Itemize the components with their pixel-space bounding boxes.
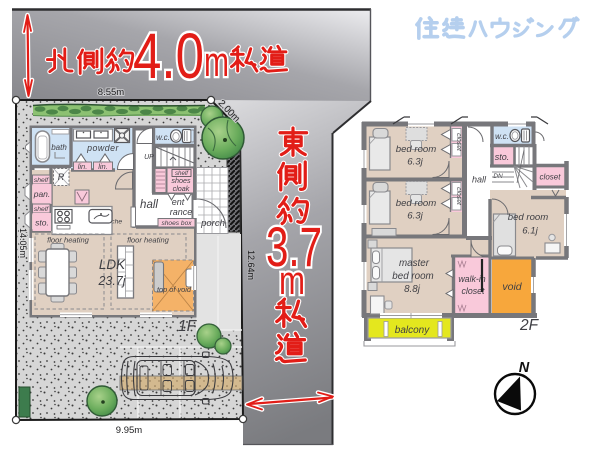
svg-text:R: R bbox=[58, 172, 65, 182]
svg-text:lin.: lin. bbox=[98, 162, 108, 171]
svg-text:balcony: balcony bbox=[395, 325, 430, 336]
svg-text:UP: UP bbox=[144, 154, 154, 161]
svg-text:14.05m: 14.05m bbox=[18, 228, 28, 258]
svg-text:m: m bbox=[279, 259, 305, 303]
svg-text:master: master bbox=[399, 258, 430, 269]
svg-text:sto.: sto. bbox=[495, 152, 510, 162]
svg-text:sto.: sto. bbox=[35, 218, 49, 228]
svg-text:12.64m: 12.64m bbox=[246, 250, 256, 280]
svg-text:bed room: bed room bbox=[508, 212, 549, 223]
svg-text:bath: bath bbox=[51, 143, 67, 152]
svg-text:8.8j: 8.8j bbox=[404, 284, 421, 295]
svg-text:floor heating: floor heating bbox=[127, 236, 170, 245]
svg-text:pan.: pan. bbox=[33, 189, 51, 199]
svg-text:closet: closet bbox=[540, 173, 562, 182]
svg-text:w.c.: w.c. bbox=[495, 132, 509, 141]
svg-text:hall: hall bbox=[140, 199, 158, 211]
svg-text:cloak: cloak bbox=[173, 184, 190, 193]
svg-text:bed room: bed room bbox=[396, 144, 437, 155]
svg-text:bed room: bed room bbox=[392, 271, 433, 282]
svg-text:1F: 1F bbox=[178, 318, 198, 335]
svg-text:LDK: LDK bbox=[99, 257, 126, 272]
svg-text:m: m bbox=[204, 38, 229, 85]
svg-text:void: void bbox=[502, 281, 522, 293]
svg-text:hall: hall bbox=[472, 175, 487, 185]
svg-text:shelf: shelf bbox=[34, 177, 49, 184]
svg-text:powder: powder bbox=[86, 143, 119, 153]
svg-text:2F: 2F bbox=[519, 317, 540, 334]
svg-text:porch: porch bbox=[200, 218, 225, 229]
svg-text:lin.: lin. bbox=[78, 162, 88, 171]
svg-text:top of void: top of void bbox=[157, 285, 192, 294]
svg-text:closet: closet bbox=[455, 133, 462, 152]
svg-text:shoes box: shoes box bbox=[161, 220, 192, 227]
svg-text:4.0: 4.0 bbox=[133, 20, 204, 92]
svg-text:N: N bbox=[519, 360, 530, 376]
svg-text:rance: rance bbox=[170, 207, 193, 217]
svg-text:closet: closet bbox=[455, 187, 462, 206]
svg-text:w.c.: w.c. bbox=[156, 133, 170, 142]
svg-text:9.95m: 9.95m bbox=[116, 425, 142, 436]
svg-text:8.55m: 8.55m bbox=[98, 87, 124, 98]
svg-text:ent: ent bbox=[172, 197, 185, 207]
svg-text:6.1j: 6.1j bbox=[522, 226, 538, 237]
svg-text:6.3j: 6.3j bbox=[407, 211, 423, 222]
svg-text:23.7j: 23.7j bbox=[97, 274, 126, 288]
svg-text:6.3j: 6.3j bbox=[407, 157, 423, 168]
svg-text:shelf: shelf bbox=[34, 206, 49, 213]
svg-text:bed room: bed room bbox=[396, 198, 437, 209]
